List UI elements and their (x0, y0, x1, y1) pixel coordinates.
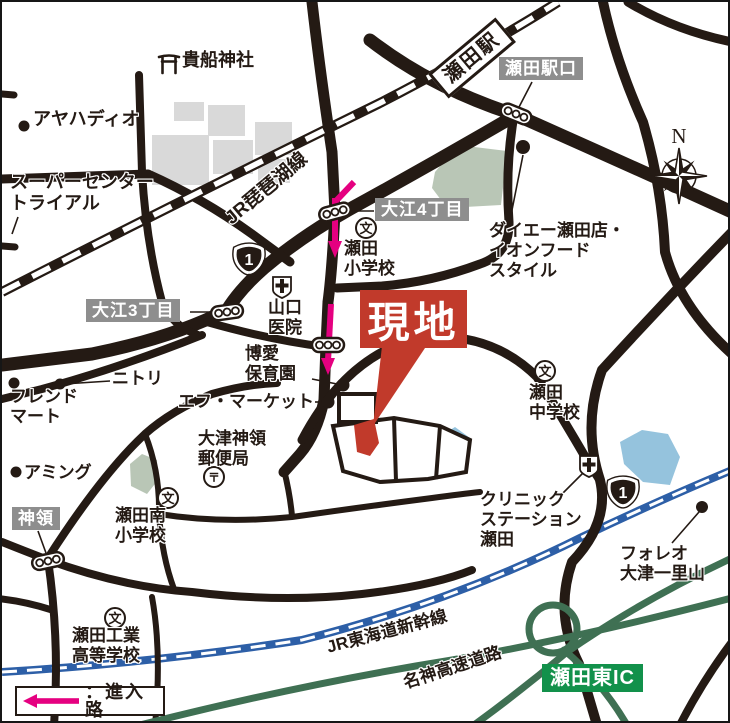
place-label-seta-junior-high: 瀬田 中学校 (529, 383, 580, 423)
place-label-ayaha-dio: アヤハディオ (33, 109, 139, 130)
intersection-label-seta-ekiguchi: 瀬田駅口 (499, 57, 583, 80)
svg-text:〒: 〒 (208, 471, 220, 485)
school-icon: 文 (105, 608, 125, 628)
legend-entry-route-label: ：進入路 (85, 683, 163, 719)
torii-icon (159, 56, 179, 74)
place-label-friend-mart: フレンド マート (10, 387, 78, 427)
daiei-dot (516, 140, 530, 154)
site-parcels (333, 394, 470, 482)
place-label-yamaguchi-clinic: 山口 医院 (268, 298, 302, 338)
place-label-kifune-shrine: 貴船神社 (182, 50, 254, 71)
place-label-foleo-otsu-ichiriyama: フォレオ 大津一里山 (620, 544, 705, 584)
place-label-seta-technical-high-school: 瀬田工業 高等学校 (72, 626, 140, 666)
place-label-aming: アミング (24, 463, 92, 483)
place-label-f-market: エフ・マーケット (178, 392, 314, 412)
place-label-hakuai-nursery: 博愛 保育園 (245, 344, 296, 384)
place-label-super-center-trial: スーパーセンター トライアル (10, 172, 154, 214)
ayaha-dio-dot (19, 121, 30, 132)
foleo-dot (696, 501, 708, 513)
water-areas (442, 427, 680, 485)
traffic-signal-icon (318, 201, 353, 223)
place-label-seta-elementary: 瀬田 小学校 (344, 239, 395, 279)
traffic-signal-icon (210, 303, 244, 321)
hospital-icon (273, 277, 291, 298)
compass-north-label: N (671, 124, 686, 148)
hospital-icon (580, 456, 598, 477)
school-icon: 文 (158, 488, 178, 508)
highway-label-seta-higashi-ic: 瀬田東IC (542, 664, 643, 692)
svg-text:1: 1 (619, 485, 628, 502)
svg-text:文: 文 (108, 611, 122, 626)
post-office-icon: 〒 (204, 467, 224, 487)
entry-route-arrow-icon (23, 693, 85, 709)
intersection-label-oe-3chome: 大江3丁目 (86, 299, 180, 322)
svg-text:文: 文 (538, 364, 552, 379)
access-map: 1 1 文 文 文 文 (0, 0, 730, 723)
route-1-shield: 1 (607, 476, 639, 508)
intersection-label-oe-4chome: 大江4丁目 (375, 198, 469, 221)
svg-text:1: 1 (245, 252, 254, 269)
place-label-daiei-aeon: ダイエー瀬田店・ イオンフード スタイル (489, 221, 625, 281)
site-label: 現地 (360, 290, 467, 348)
place-label-otsu-shinryo-post-office: 大津神領 郵便局 (198, 429, 266, 469)
site-pointer (373, 342, 429, 426)
place-label-clinic-station-seta: クリニック ステーション 瀬田 (480, 490, 582, 550)
f-market-dot (322, 396, 335, 409)
svg-text:文: 文 (161, 491, 175, 506)
school-icon: 文 (535, 361, 555, 381)
place-label-seta-minami-elementary: 瀬田南 小学校 (115, 506, 166, 546)
svg-text:文: 文 (359, 221, 373, 236)
aming-dot (11, 467, 22, 478)
intersection-label-shinryo: 神領 (12, 507, 60, 530)
hakuai-dot (337, 379, 350, 392)
legend-box: ：進入路 (15, 686, 165, 716)
traffic-signal-icon (312, 338, 344, 352)
school-icon: 文 (356, 218, 376, 238)
place-label-nitori: ニトリ (112, 369, 163, 389)
